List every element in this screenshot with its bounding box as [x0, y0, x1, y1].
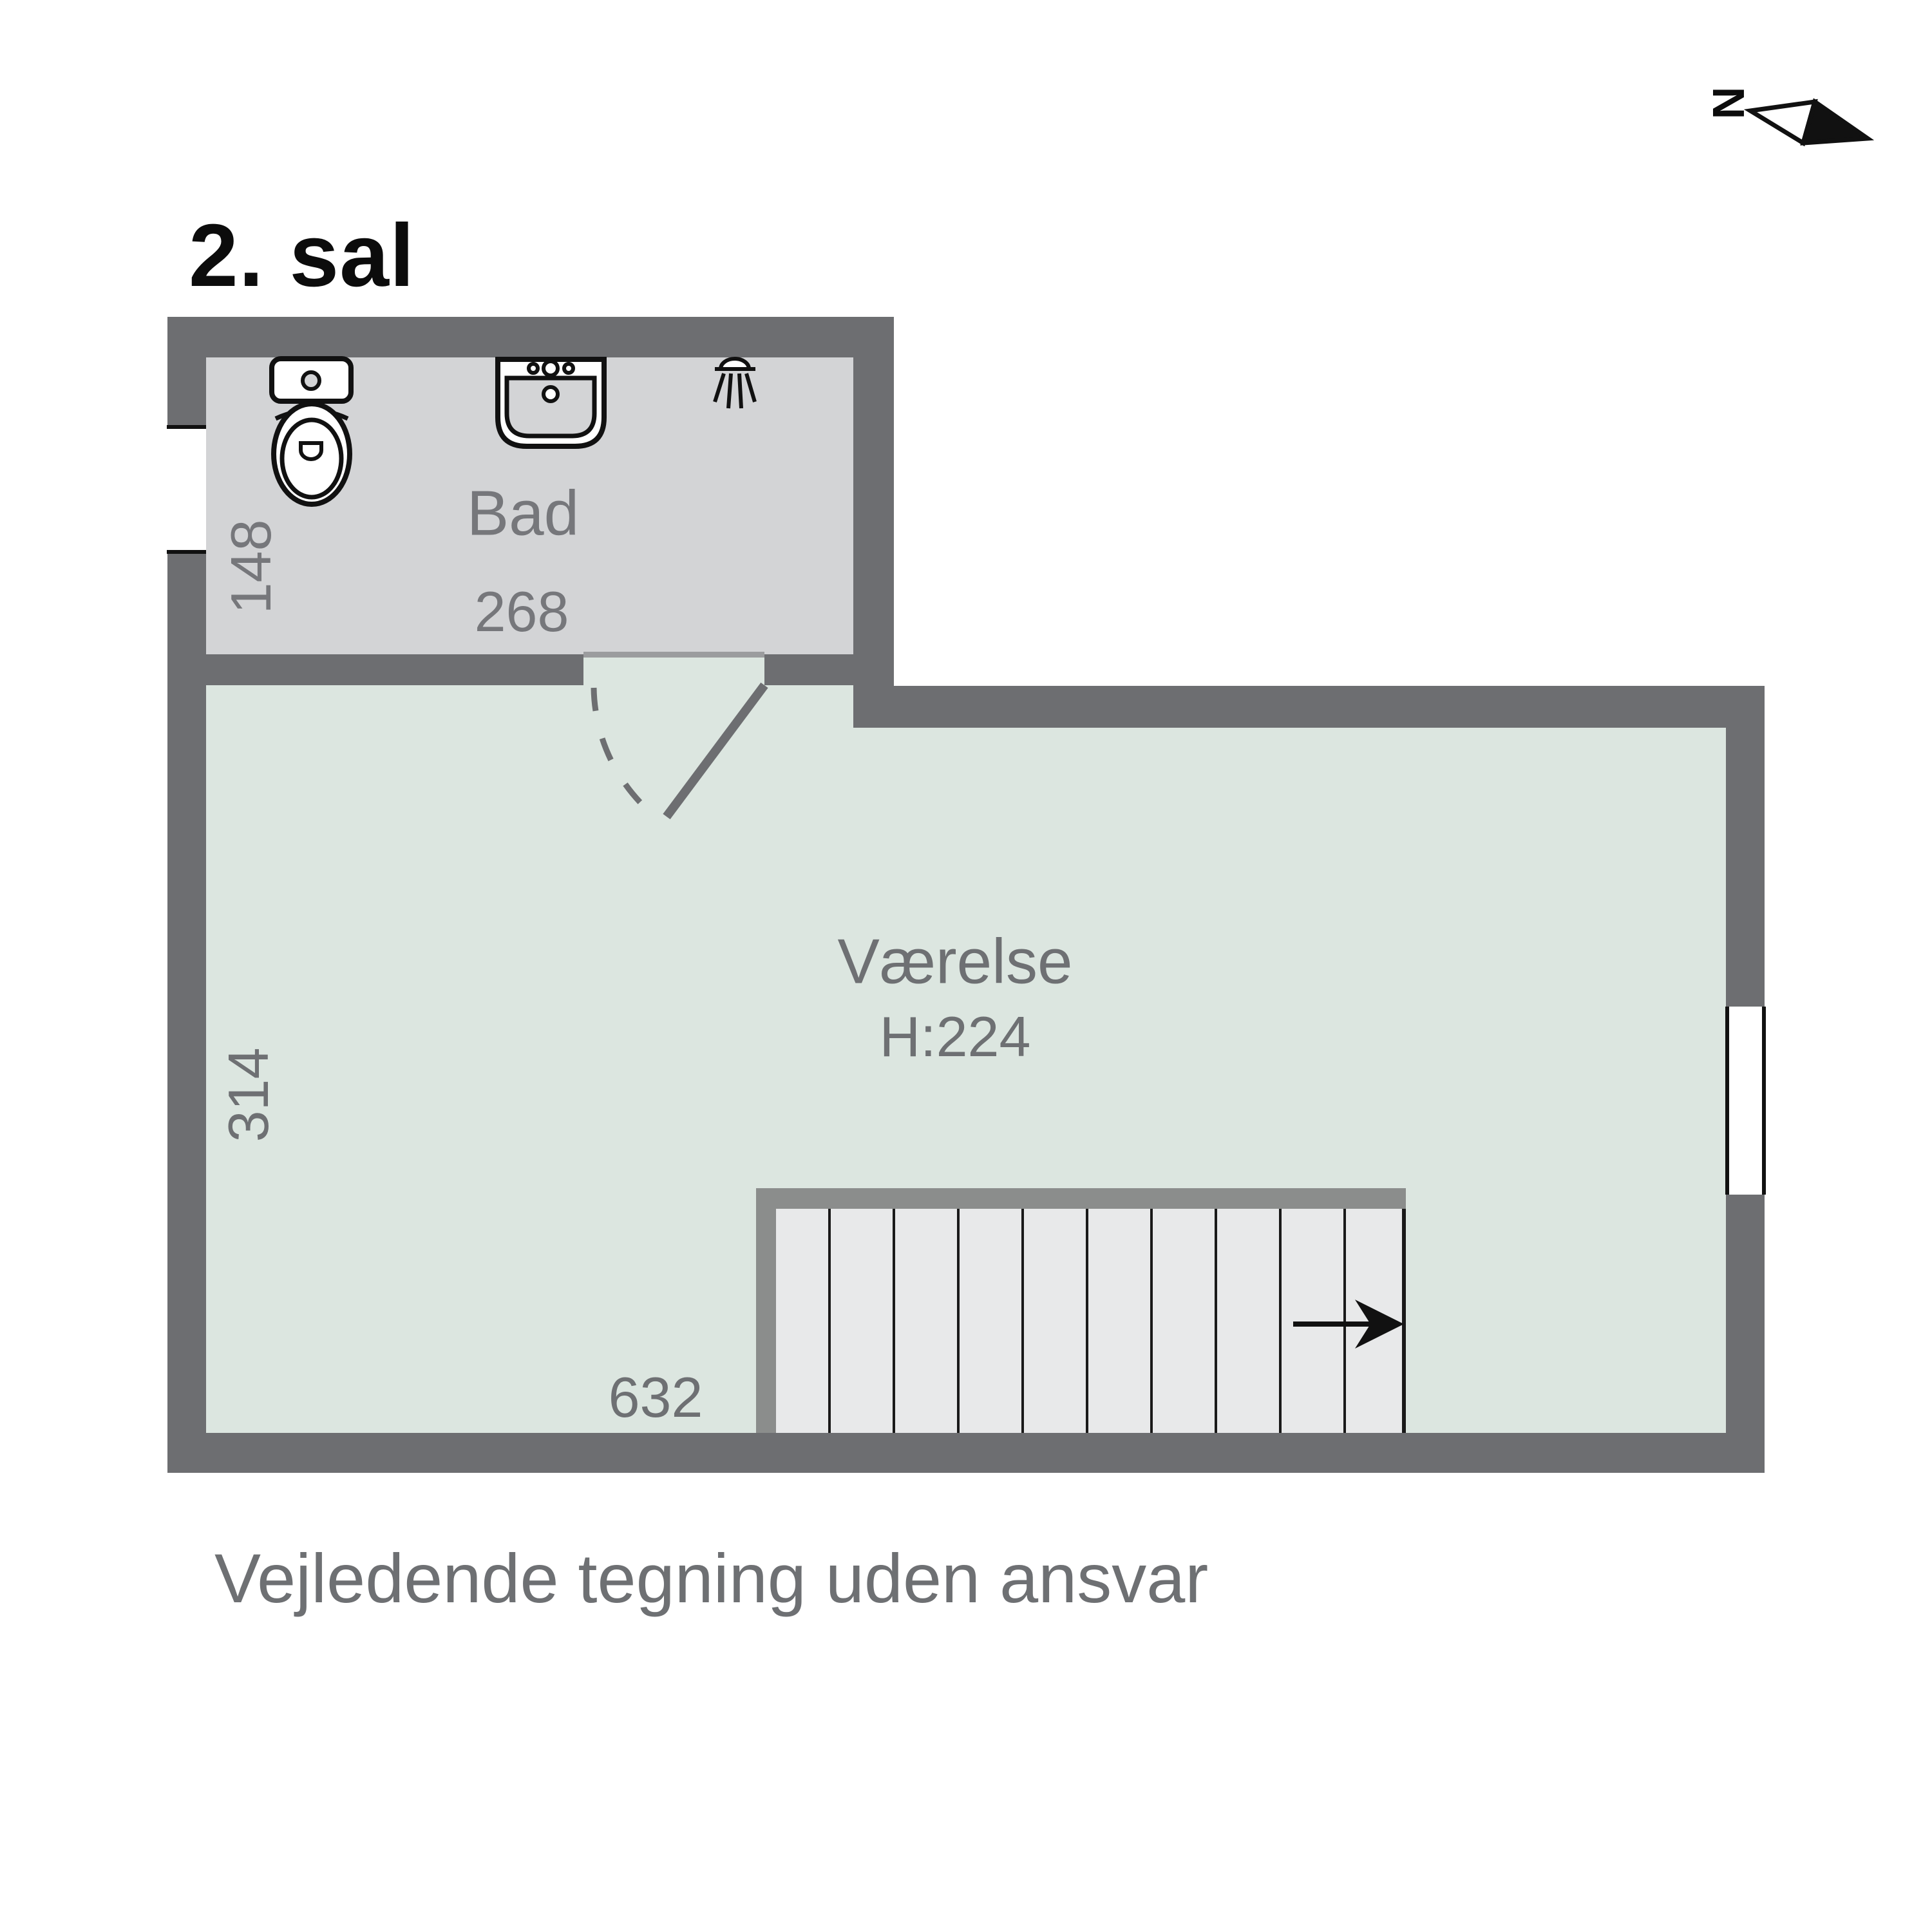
doorway-opening [583, 654, 764, 685]
window-right [1725, 1007, 1766, 1195]
north-arrow-icon [1750, 102, 1868, 143]
room-depth-dimension: 314 [216, 1048, 281, 1142]
doorway-threshold [583, 652, 764, 658]
room-ceiling-height-label: H:224 [880, 1004, 1031, 1070]
window-left [167, 425, 206, 554]
floor-plan-page: 2. sal N Bad 268 148 Værelse H:224 314 6… [0, 0, 1932, 1932]
stairs-treads [776, 1209, 1404, 1433]
room-width-dimension: 632 [609, 1365, 703, 1430]
stairs-frame-top [756, 1188, 1406, 1209]
stairs [756, 1188, 1406, 1433]
sink-icon [498, 359, 604, 446]
floor-title: 2. sal [189, 205, 415, 307]
north-label: N [1703, 87, 1754, 120]
bathroom-width-dimension: 268 [475, 579, 569, 645]
bathroom-name-label: Bad [467, 477, 579, 550]
room-name-label: Værelse [838, 925, 1073, 998]
toilet-icon [272, 359, 351, 504]
bathroom-depth-dimension: 148 [218, 520, 284, 614]
stairs-frame-left [756, 1188, 776, 1433]
disclaimer-text: Vejledende tegning uden ansvar [214, 1538, 1208, 1618]
